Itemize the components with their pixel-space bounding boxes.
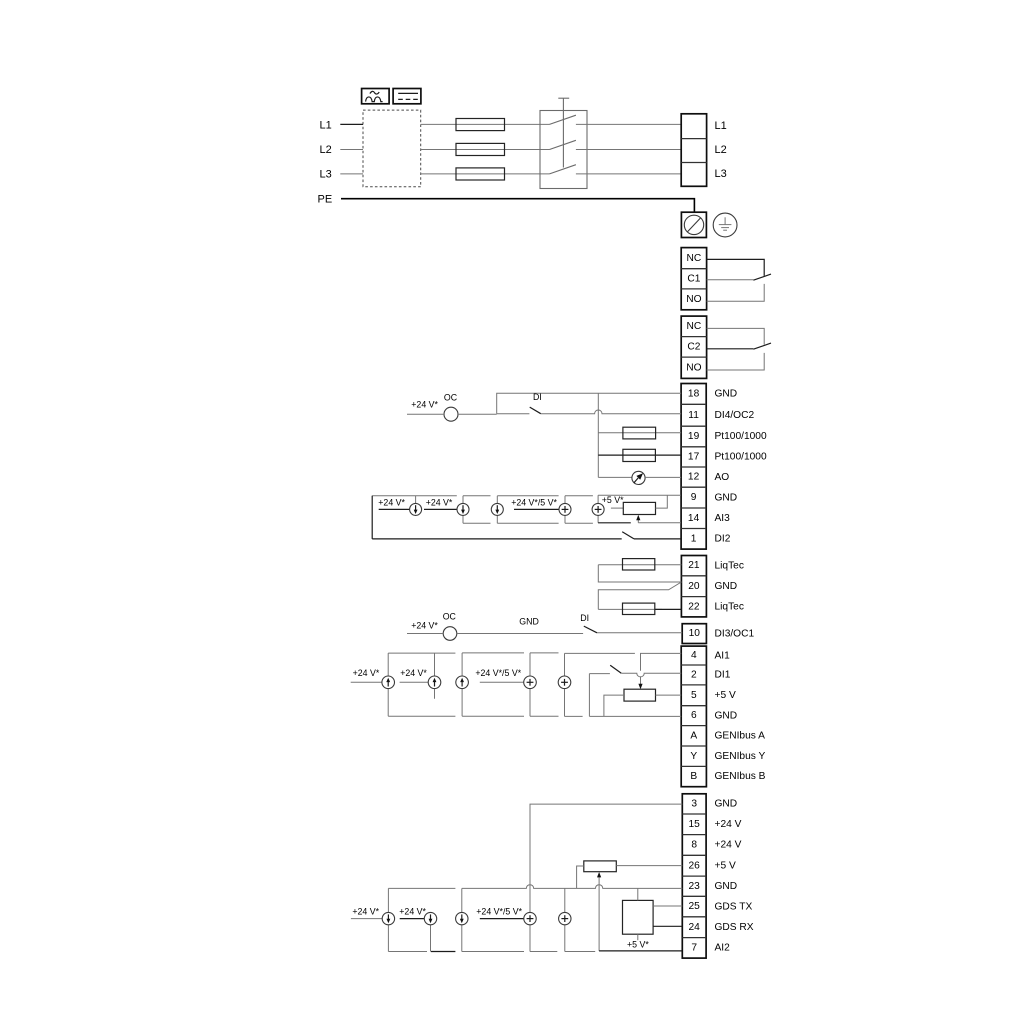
svg-text:15: 15 xyxy=(689,819,701,830)
svg-text:NC: NC xyxy=(687,253,702,264)
svg-text:DI1: DI1 xyxy=(715,670,731,681)
svg-text:+24 V*: +24 V* xyxy=(411,621,438,631)
svg-text:AI1: AI1 xyxy=(715,650,731,661)
svg-text:L3: L3 xyxy=(715,168,727,180)
svg-text:+24 V*: +24 V* xyxy=(399,907,426,917)
svg-text:+24 V*/5 V*: +24 V*/5 V* xyxy=(475,668,521,678)
svg-text:14: 14 xyxy=(688,513,700,524)
svg-text:12: 12 xyxy=(688,472,700,483)
svg-text:1: 1 xyxy=(691,533,697,544)
svg-text:+24 V*: +24 V* xyxy=(411,399,438,409)
svg-text:25: 25 xyxy=(689,901,701,912)
svg-text:LiqTec: LiqTec xyxy=(715,601,744,612)
svg-text:10: 10 xyxy=(689,628,701,639)
svg-text:GND: GND xyxy=(715,492,738,503)
svg-text:+24 V*/5 V*: +24 V*/5 V* xyxy=(511,498,557,508)
svg-text:+24 V*: +24 V* xyxy=(378,498,405,508)
svg-text:5: 5 xyxy=(691,690,697,701)
svg-text:GENIbus A: GENIbus A xyxy=(715,731,766,742)
svg-text:18: 18 xyxy=(688,389,700,400)
svg-text:DI4/OC2: DI4/OC2 xyxy=(715,410,755,421)
svg-text:NO: NO xyxy=(686,362,701,373)
svg-text:GND: GND xyxy=(715,881,738,892)
svg-text:23: 23 xyxy=(689,881,701,892)
svg-text:GENIbus B: GENIbus B xyxy=(715,771,766,782)
svg-text:B: B xyxy=(690,771,697,782)
svg-text:GND: GND xyxy=(715,581,738,592)
svg-text:26: 26 xyxy=(689,860,701,871)
svg-text:8: 8 xyxy=(691,840,697,851)
svg-text:22: 22 xyxy=(688,601,700,612)
svg-text:AO: AO xyxy=(715,472,730,483)
svg-text:L3: L3 xyxy=(320,168,332,180)
svg-text:+24 V*: +24 V* xyxy=(400,668,427,678)
svg-text:DI3/OC1: DI3/OC1 xyxy=(715,628,755,639)
svg-text:GND: GND xyxy=(715,710,738,721)
svg-text:A: A xyxy=(690,730,697,741)
svg-text:20: 20 xyxy=(688,581,700,592)
svg-text:6: 6 xyxy=(691,710,697,721)
svg-text:L1: L1 xyxy=(320,119,332,131)
svg-text:4: 4 xyxy=(691,650,697,661)
svg-text:+24 V*: +24 V* xyxy=(352,907,379,917)
svg-text:+5 V: +5 V xyxy=(715,860,736,871)
svg-text:L1: L1 xyxy=(715,120,727,132)
svg-text:AI3: AI3 xyxy=(715,513,731,524)
svg-text:21: 21 xyxy=(688,560,700,571)
svg-text:GND: GND xyxy=(715,389,738,400)
svg-text:GND: GND xyxy=(519,617,539,627)
svg-text:19: 19 xyxy=(688,431,700,442)
svg-text:L2: L2 xyxy=(715,144,727,156)
svg-text:GENIbus Y: GENIbus Y xyxy=(715,751,766,762)
svg-text:9: 9 xyxy=(691,492,697,503)
svg-text:24: 24 xyxy=(689,922,701,933)
svg-text:+24 V: +24 V xyxy=(715,840,742,851)
svg-text:+24 V*: +24 V* xyxy=(353,668,380,678)
svg-text:DI: DI xyxy=(580,613,589,623)
svg-text:AI2: AI2 xyxy=(715,943,731,954)
svg-text:11: 11 xyxy=(688,410,699,421)
svg-text:+24 V*: +24 V* xyxy=(426,498,453,508)
svg-text:+24 V*/5 V*: +24 V*/5 V* xyxy=(476,907,522,917)
svg-text:C2: C2 xyxy=(687,342,700,353)
svg-text:7: 7 xyxy=(691,943,697,954)
svg-text:OC: OC xyxy=(443,611,457,621)
svg-text:DI2: DI2 xyxy=(715,534,731,545)
svg-text:+5 V*: +5 V* xyxy=(602,495,624,505)
svg-text:Pt100/1000: Pt100/1000 xyxy=(715,452,767,463)
svg-text:NO: NO xyxy=(686,294,701,305)
svg-text:+5 V*: +5 V* xyxy=(627,939,649,949)
svg-text:3: 3 xyxy=(691,799,697,810)
svg-text:PE: PE xyxy=(318,193,333,205)
svg-text:DI: DI xyxy=(533,392,542,402)
svg-text:+24 V: +24 V xyxy=(715,819,742,830)
svg-text:2: 2 xyxy=(691,670,697,681)
svg-text:17: 17 xyxy=(688,452,700,463)
svg-text:C1: C1 xyxy=(687,273,700,284)
svg-text:L2: L2 xyxy=(320,144,332,156)
svg-text:+5 V: +5 V xyxy=(715,690,736,701)
svg-text:Y: Y xyxy=(690,751,697,762)
svg-text:GDS RX: GDS RX xyxy=(715,922,754,933)
svg-text:NC: NC xyxy=(687,321,702,332)
svg-text:Pt100/1000: Pt100/1000 xyxy=(715,431,767,442)
svg-text:GDS TX: GDS TX xyxy=(715,901,753,912)
svg-text:GND: GND xyxy=(715,799,738,810)
svg-text:LiqTec: LiqTec xyxy=(715,560,744,571)
svg-text:OC: OC xyxy=(444,392,458,402)
